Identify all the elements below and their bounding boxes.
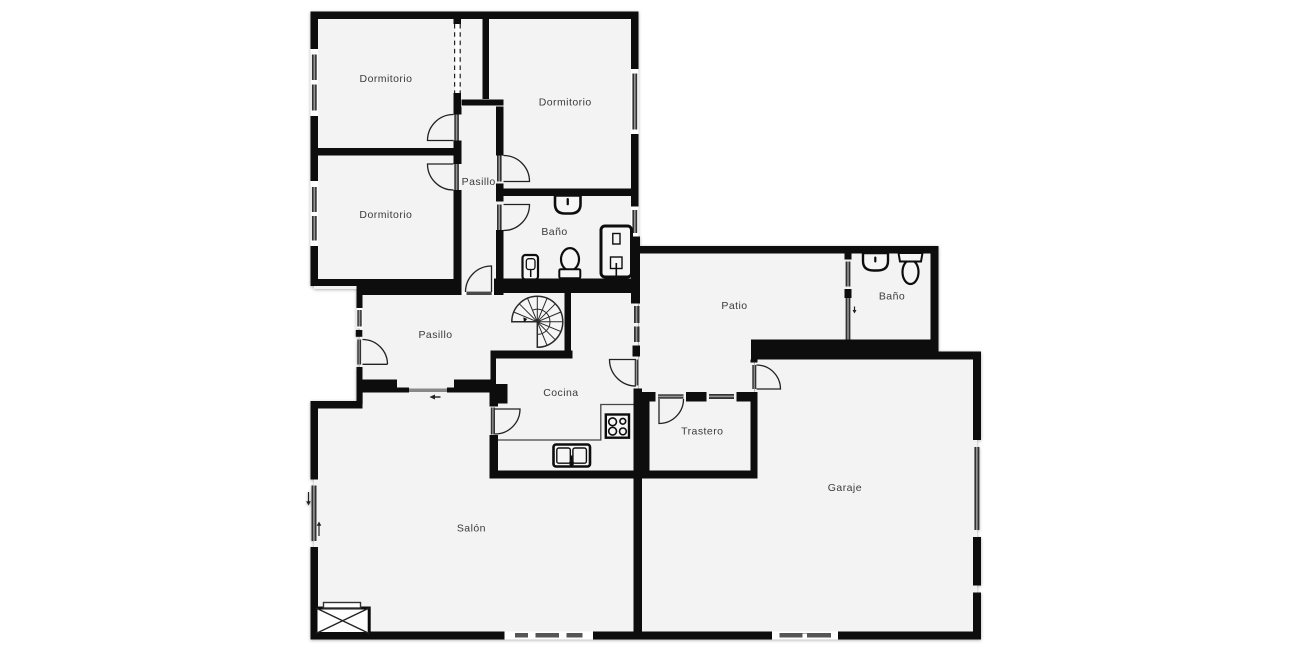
svg-text:Dormitorio: Dormitorio [360,73,413,85]
svg-text:Baño: Baño [879,291,905,303]
svg-text:Dormitorio: Dormitorio [539,96,592,108]
svg-text:Salón: Salón [457,523,486,535]
svg-text:Patio: Patio [721,300,747,312]
svg-text:Baño: Baño [541,226,567,238]
svg-text:Pasillo: Pasillo [462,176,496,188]
svg-text:Trastero: Trastero [681,425,723,437]
svg-text:Dormitorio: Dormitorio [359,209,412,221]
svg-text:Garaje: Garaje [828,482,862,494]
svg-text:Cocina: Cocina [543,387,578,399]
svg-text:Pasillo: Pasillo [418,329,452,341]
